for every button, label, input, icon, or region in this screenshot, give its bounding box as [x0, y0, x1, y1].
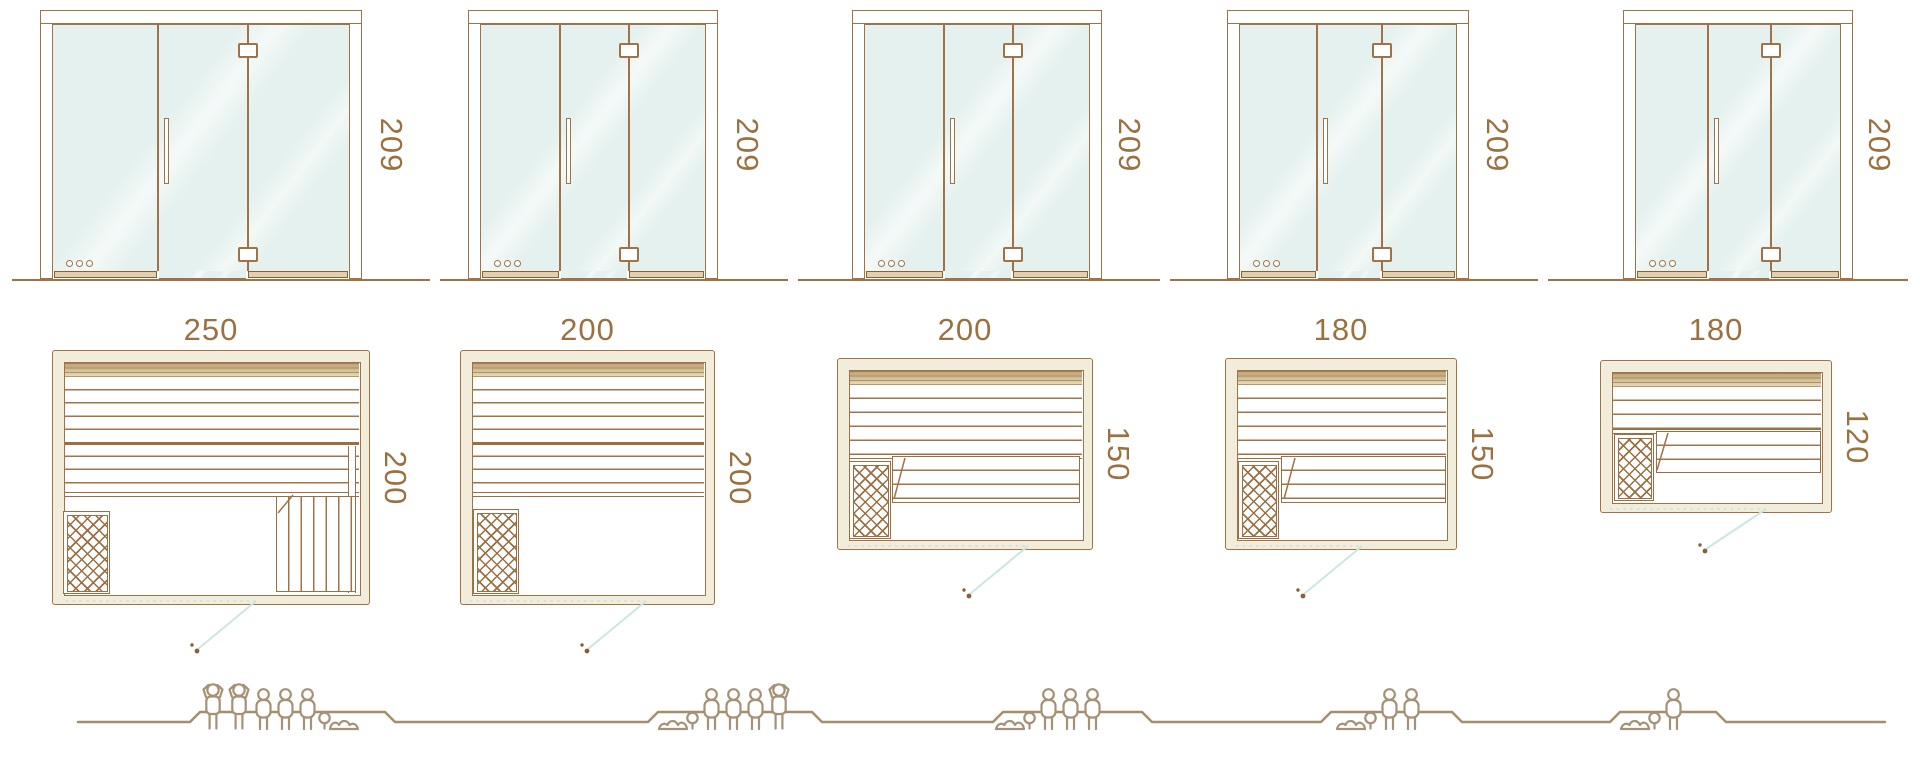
- dimension-width-label: 200: [560, 312, 615, 348]
- door-frame-top-beam: [1227, 10, 1469, 24]
- vent-dot-icon: [878, 260, 885, 267]
- door-leaf-bottom: [561, 271, 627, 279]
- door-frame-right-post: [705, 10, 718, 279]
- door-leaf-bottom: [159, 271, 246, 279]
- hinge-icon: [619, 43, 639, 58]
- hinge-icon: [238, 247, 258, 262]
- vent-dot-icon: [898, 260, 905, 267]
- vent-dot-icon: [66, 260, 73, 267]
- dimension-width-label: 180: [1689, 312, 1744, 348]
- door-frame-left-post: [1227, 10, 1240, 279]
- bench-boards: [473, 377, 704, 492]
- bench-boards: [850, 385, 1082, 454]
- door-handle: [1714, 118, 1719, 184]
- plan-top-view: [1225, 358, 1457, 550]
- vent-dot-icon: [86, 260, 93, 267]
- dimension-width-label: 200: [938, 312, 993, 348]
- bench-boards: [1238, 385, 1446, 454]
- floor-baseline: [798, 279, 1160, 281]
- door-leaf-bottom: [945, 271, 1011, 279]
- door-leaf-bottom: [1318, 271, 1380, 279]
- right-panel-sill: [248, 271, 348, 278]
- left-panel-sill: [1637, 271, 1707, 278]
- bench-front-edge: [473, 492, 704, 497]
- hinge-icon: [1761, 247, 1781, 262]
- hinge-icon: [1761, 43, 1781, 58]
- right-panel-sill: [1382, 271, 1455, 278]
- dimension-height-label: 209: [373, 117, 409, 172]
- dimension-depth-label: 200: [377, 450, 413, 505]
- plan-top-view: [837, 358, 1093, 550]
- heater: [63, 511, 110, 594]
- backrest-band: [1613, 373, 1821, 387]
- door-handle: [1323, 118, 1328, 184]
- door-handle: [164, 118, 169, 184]
- heater: [473, 509, 519, 594]
- right-panel-sill: [629, 271, 704, 278]
- floor-baseline: [12, 279, 430, 281]
- vent-dot-icon: [1649, 260, 1656, 267]
- glass-front: [1240, 24, 1456, 271]
- backrest-band: [850, 371, 1082, 385]
- glass-divider-right: [1012, 25, 1014, 271]
- glass-divider-right: [1770, 25, 1772, 271]
- vent-dot-icon: [1273, 260, 1280, 267]
- door-frame-right-post: [1456, 10, 1469, 279]
- dimension-depth-label: 150: [1464, 427, 1500, 482]
- bench-tier-edge: [473, 442, 704, 445]
- glass-divider-left: [559, 25, 561, 271]
- door-frame-left-post: [468, 10, 481, 279]
- bench-tier-edge: [65, 442, 359, 445]
- left-panel-sill: [482, 271, 559, 278]
- hinge-icon: [1003, 43, 1023, 58]
- plan-top-view: [1600, 360, 1832, 513]
- vent-dot-icon: [888, 260, 895, 267]
- backrest-band: [1238, 371, 1446, 385]
- dimension-width-label: 180: [1314, 312, 1369, 348]
- left-panel-sill: [1241, 271, 1316, 278]
- vent-dot-icon: [1659, 260, 1666, 267]
- left-panel-sill: [866, 271, 943, 278]
- vent-dot-icon: [494, 260, 501, 267]
- sauna-size-diagram: 2092092092092092502002002002001501801501…: [0, 0, 1920, 764]
- door-handle: [566, 118, 571, 184]
- vent-dot-icon: [1253, 260, 1260, 267]
- vent-dot-icon: [76, 260, 83, 267]
- glass-divider-left: [1707, 25, 1709, 271]
- dimension-height-label: 209: [1479, 117, 1515, 172]
- heater: [1614, 434, 1654, 501]
- glass-front: [53, 24, 349, 271]
- hinge-icon: [1003, 247, 1023, 262]
- hinge-icon: [1372, 247, 1392, 262]
- lower-bench: [1281, 456, 1446, 503]
- floor-baseline: [1170, 279, 1538, 281]
- glass-divider-right: [247, 25, 249, 271]
- hinge-icon: [238, 43, 258, 58]
- right-panel-sill: [1013, 271, 1088, 278]
- glass-front: [865, 24, 1089, 271]
- glass-front: [481, 24, 705, 271]
- glass-front: [1636, 24, 1840, 271]
- backrest-band: [65, 363, 359, 377]
- door-elevation: [40, 10, 362, 279]
- door-frame-right-post: [1840, 10, 1853, 279]
- door-frame-left-post: [40, 10, 53, 279]
- door-elevation: [468, 10, 718, 279]
- door-elevation: [1227, 10, 1469, 279]
- lower-bench: [892, 456, 1080, 503]
- dimension-height-label: 209: [1111, 117, 1147, 172]
- heater: [1238, 461, 1279, 539]
- hinge-icon: [619, 247, 639, 262]
- door-frame-right-post: [1089, 10, 1102, 279]
- glass-divider-left: [943, 25, 945, 271]
- bench-boards: [65, 377, 359, 492]
- dimension-depth-label: 120: [1839, 409, 1875, 464]
- backrest-band: [473, 363, 704, 377]
- dimension-depth-label: 150: [1100, 427, 1136, 482]
- heater: [849, 461, 891, 539]
- right-panel-sill: [1771, 271, 1839, 278]
- glass-divider-left: [157, 25, 159, 271]
- door-frame-top-beam: [40, 10, 362, 24]
- corner-step-bench: [276, 496, 356, 592]
- hinge-icon: [1372, 43, 1392, 58]
- door-elevation: [852, 10, 1102, 279]
- door-frame-top-beam: [1623, 10, 1853, 24]
- plan-top-view: [52, 350, 370, 605]
- glass-divider-left: [1316, 25, 1318, 271]
- door-frame-left-post: [852, 10, 865, 279]
- dimension-height-label: 209: [729, 117, 765, 172]
- vent-dot-icon: [504, 260, 511, 267]
- plan-top-view: [460, 350, 715, 605]
- floor-baseline: [1548, 279, 1908, 281]
- door-frame-top-beam: [468, 10, 718, 24]
- floor-baseline: [440, 279, 788, 281]
- lower-bench: [1656, 431, 1821, 473]
- dimension-depth-label: 200: [722, 450, 758, 505]
- dimension-width-label: 250: [184, 312, 239, 348]
- vent-dot-icon: [514, 260, 521, 267]
- door-handle: [950, 118, 955, 184]
- dimension-height-label: 209: [1861, 117, 1897, 172]
- vent-dot-icon: [1669, 260, 1676, 267]
- door-elevation: [1623, 10, 1853, 279]
- glass-divider-right: [1381, 25, 1383, 271]
- left-panel-sill: [54, 271, 157, 278]
- glass-divider-right: [628, 25, 630, 271]
- door-frame-right-post: [349, 10, 362, 279]
- door-leaf-bottom: [1709, 271, 1769, 279]
- bench-boards: [1613, 387, 1821, 429]
- vent-dot-icon: [1263, 260, 1270, 267]
- door-frame-left-post: [1623, 10, 1636, 279]
- door-frame-top-beam: [852, 10, 1102, 24]
